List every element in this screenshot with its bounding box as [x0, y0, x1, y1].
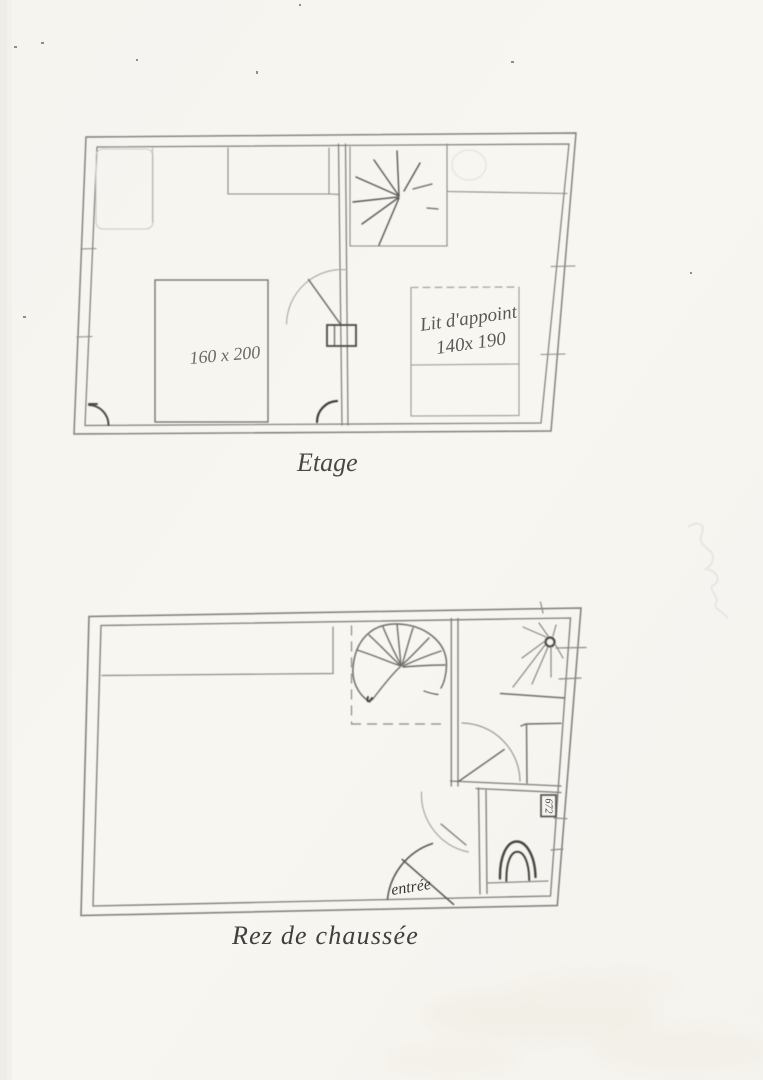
svg-text:Etage: Etage — [296, 448, 358, 477]
svg-text:Rez de chaussée: Rez de chaussée — [231, 921, 419, 950]
svg-text:672: 672 — [543, 799, 554, 814]
